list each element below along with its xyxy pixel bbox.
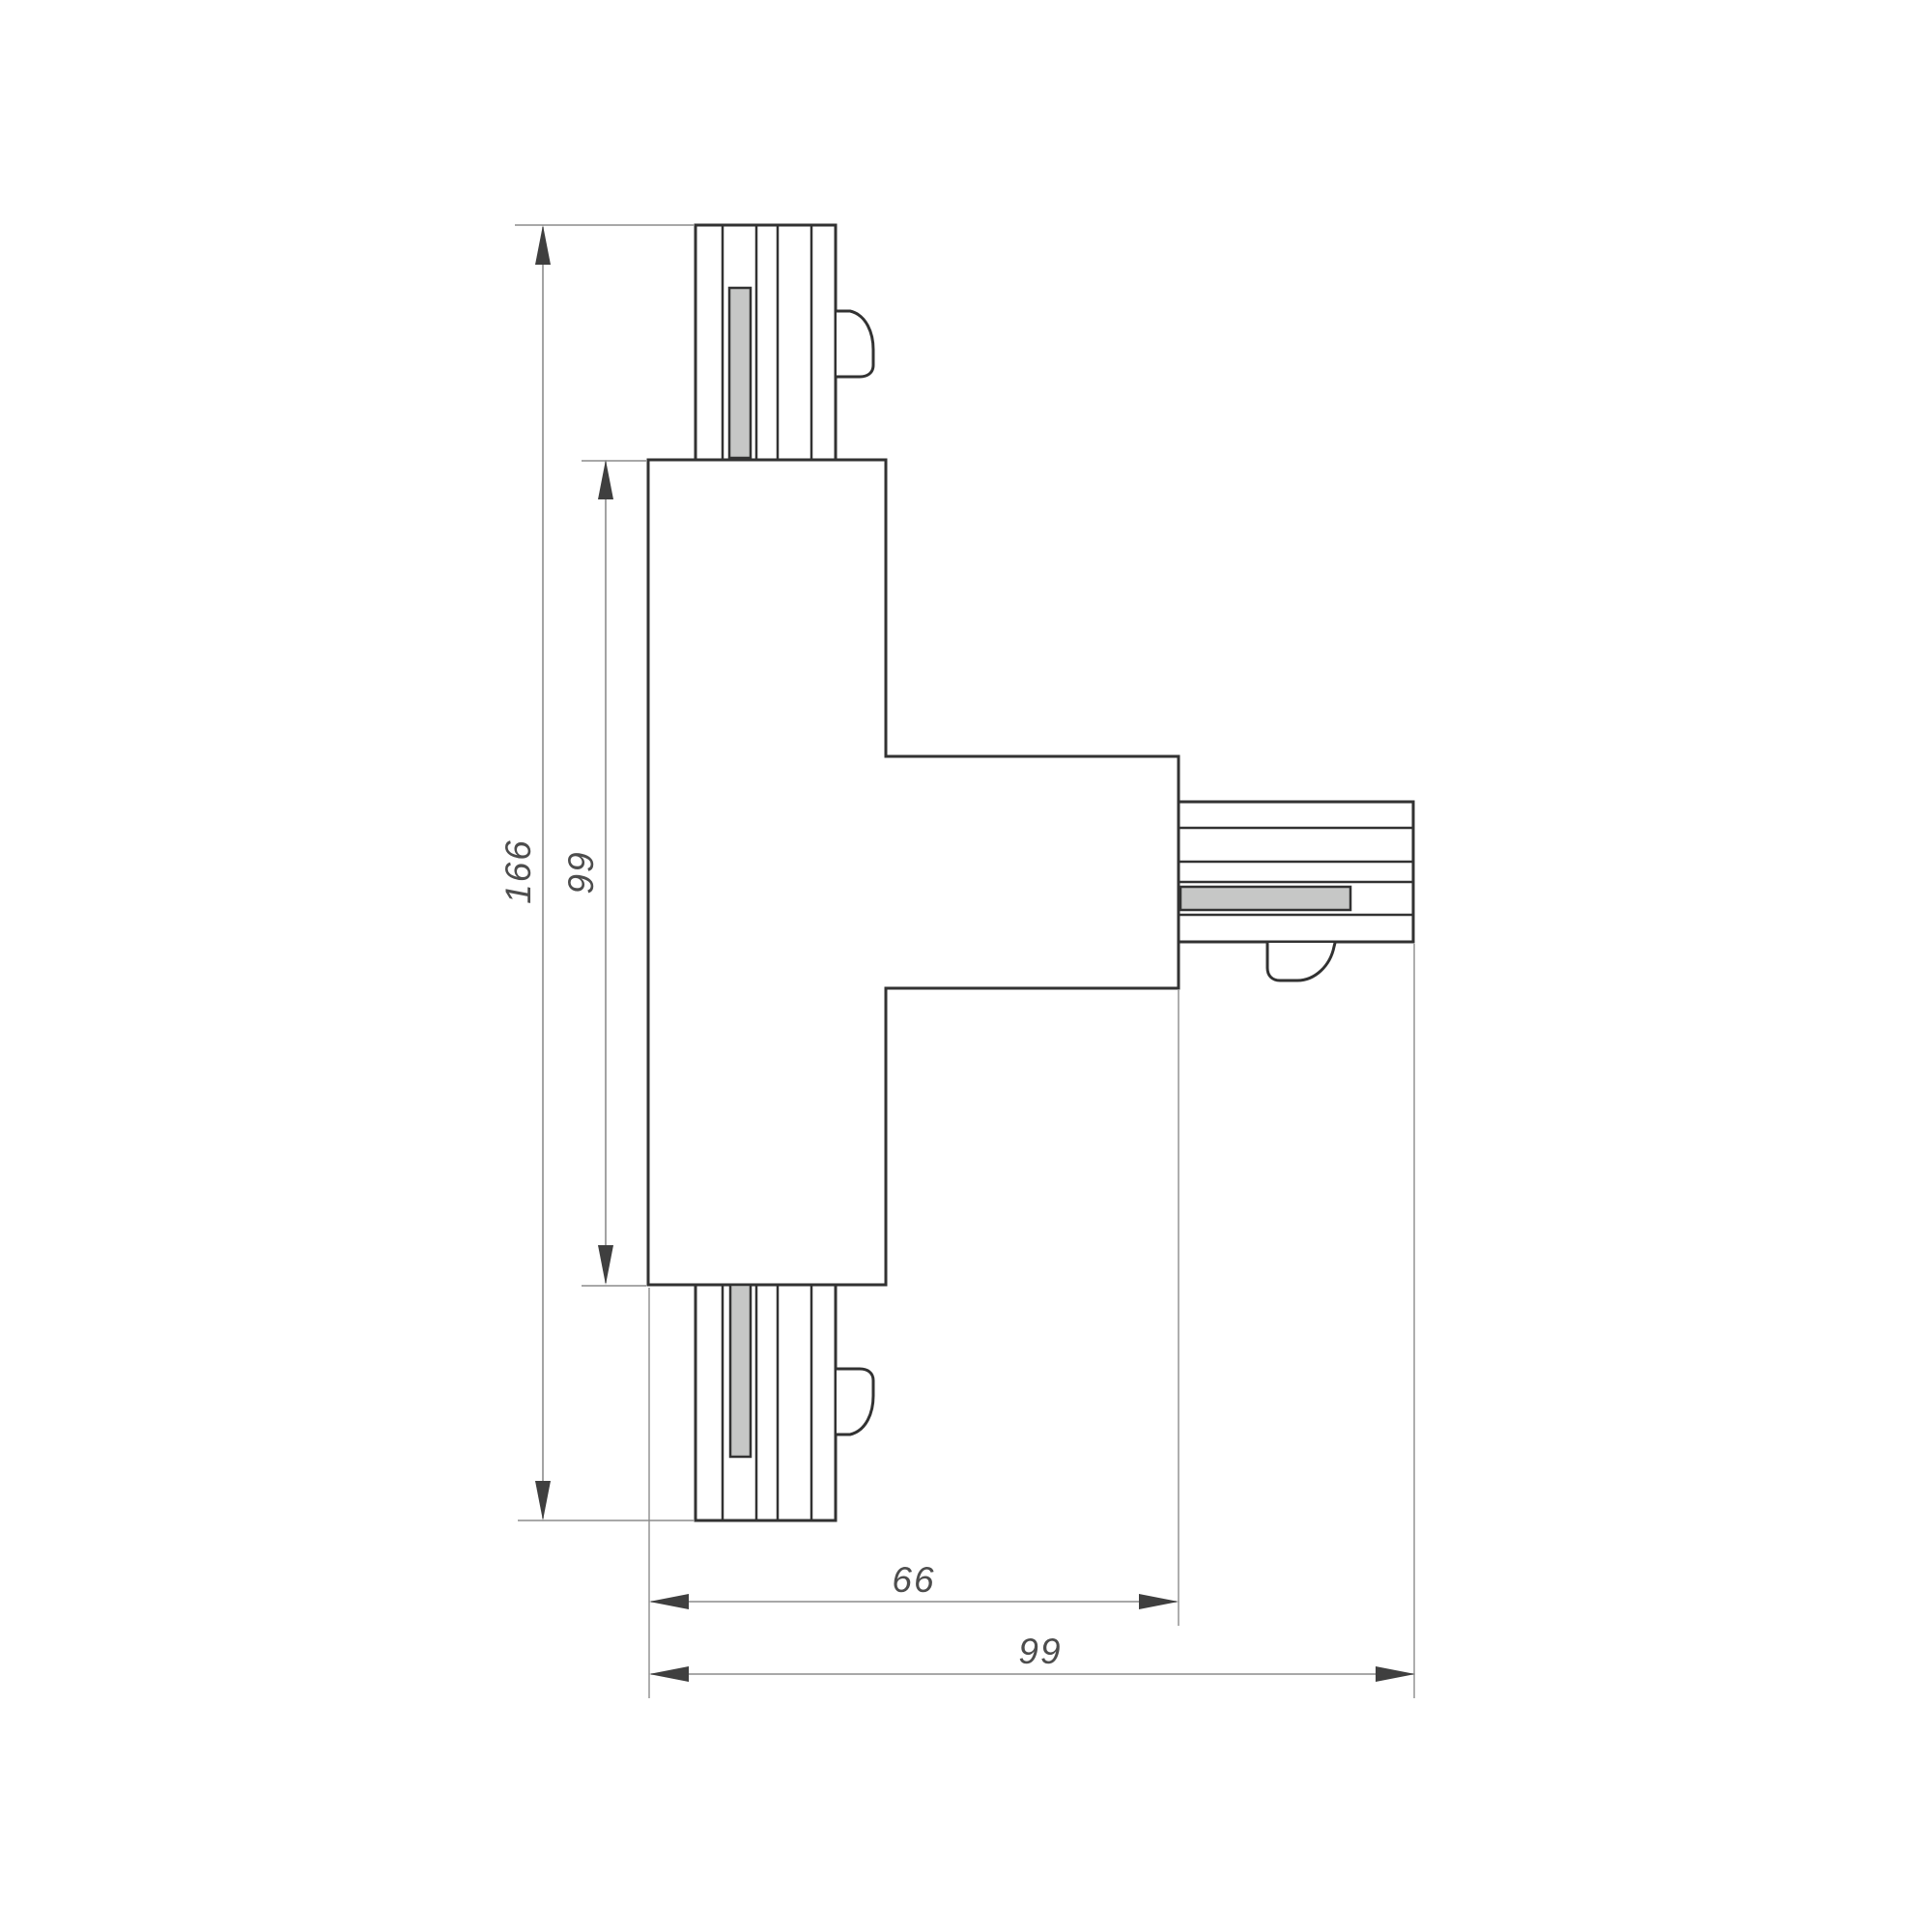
top-track-end xyxy=(696,225,873,460)
arrow-up-icon xyxy=(598,460,613,499)
bottom-track-end xyxy=(696,1285,873,1520)
arrow-down-icon xyxy=(535,1481,551,1520)
top-track-end-outline xyxy=(696,225,836,460)
right-locking-tab xyxy=(1267,943,1335,980)
bottom-locking-tab xyxy=(837,1369,873,1435)
right-track-end-outline xyxy=(1179,802,1413,942)
top-locking-tab xyxy=(837,311,873,377)
bottom-track-end-outline xyxy=(696,1285,836,1520)
top-contact-strip xyxy=(729,288,751,458)
arrow-left-icon xyxy=(649,1594,689,1609)
arrow-right-icon xyxy=(1376,1666,1415,1682)
dimension-body-height: 99 xyxy=(561,460,646,1286)
arrow-right-icon xyxy=(1139,1594,1179,1609)
technical-drawing: 166 99 66 99 xyxy=(0,0,1932,1932)
connector-body xyxy=(648,460,1179,1285)
dim-label-99-vertical: 99 xyxy=(561,850,601,894)
dim-label-66: 66 xyxy=(892,1560,935,1600)
dim-label-99-horizontal: 99 xyxy=(1018,1632,1062,1671)
arrow-left-icon xyxy=(649,1666,689,1682)
right-contact-strip xyxy=(1180,887,1350,910)
right-track-end xyxy=(1179,802,1413,980)
arrow-up-icon xyxy=(535,225,551,265)
dim-label-166: 166 xyxy=(498,838,538,904)
bottom-contact-strip xyxy=(730,1285,751,1457)
arrow-down-icon xyxy=(598,1245,613,1285)
